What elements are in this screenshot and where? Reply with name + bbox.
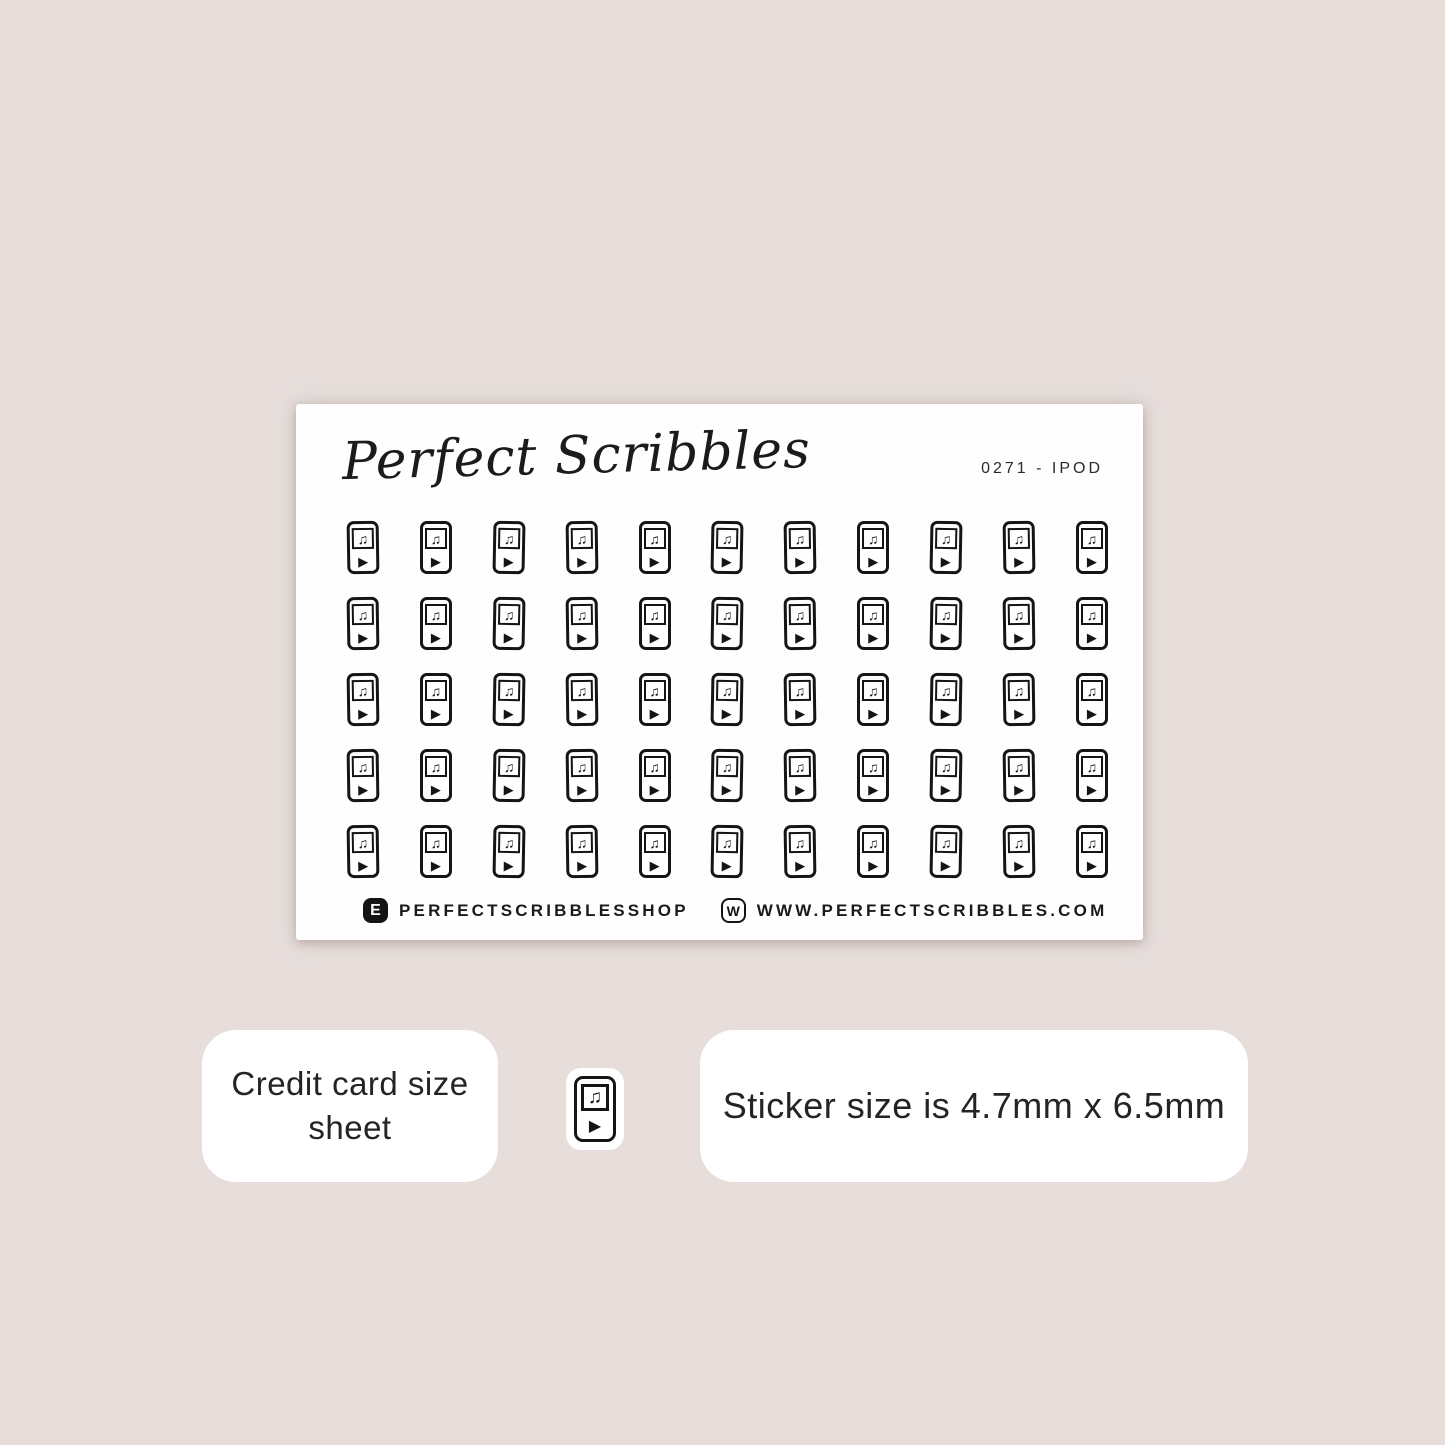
- music-note-icon: ♫: [716, 528, 738, 549]
- ipod-sticker-icon: ♫▶: [784, 521, 817, 574]
- ipod-sticker-icon: ♫▶: [1076, 597, 1108, 650]
- ipod-sticker-icon: ♫▶: [857, 673, 889, 726]
- music-note-icon: ♫: [644, 680, 666, 701]
- play-icon: ▶: [577, 555, 587, 568]
- ipod-sticker-icon: ♫▶: [347, 521, 380, 574]
- play-icon: ▶: [1087, 631, 1097, 644]
- ipod-sticker-icon: ♫▶: [1003, 521, 1036, 574]
- music-note-icon: ♫: [789, 680, 811, 701]
- ipod-sticker-icon: ♫▶: [1003, 749, 1036, 802]
- ipod-sticker-icon: ♫▶: [711, 673, 744, 727]
- music-note-icon: ♫: [498, 756, 520, 777]
- play-icon: ▶: [431, 631, 441, 644]
- play-icon: ▶: [1014, 631, 1024, 644]
- music-note-icon: ♫: [644, 604, 666, 625]
- music-note-icon: ♫: [570, 832, 592, 853]
- play-icon: ▶: [941, 783, 951, 796]
- play-icon: ▶: [431, 707, 441, 720]
- ipod-sticker-icon: ♫▶: [347, 825, 380, 878]
- music-note-icon: ♫: [1081, 604, 1103, 625]
- ipod-sticker-icon: ♫▶: [1003, 825, 1036, 878]
- play-icon: ▶: [1014, 859, 1024, 872]
- play-icon: ▶: [795, 859, 805, 872]
- product-image-canvas: Perfect Scribbles 0271 - IPOD ♫▶♫▶♫▶♫▶♫▶…: [0, 0, 1445, 1445]
- music-note-icon: ♫: [644, 528, 666, 549]
- play-icon: ▶: [577, 783, 587, 796]
- sticker-grid: ♫▶♫▶♫▶♫▶♫▶♫▶♫▶♫▶♫▶♫▶♫▶♫▶♫▶♫▶♫▶♫▶♫▶♫▶♫▶♫▶…: [347, 521, 1108, 878]
- music-note-icon: ♫: [644, 832, 666, 853]
- music-note-icon: ♫: [425, 680, 447, 701]
- music-note-icon: ♫: [1081, 756, 1103, 777]
- music-note-icon: ♫: [352, 680, 374, 701]
- music-note-icon: ♫: [425, 832, 447, 853]
- ipod-sticker-icon: ♫▶: [347, 673, 380, 726]
- music-note-icon: ♫: [716, 756, 738, 777]
- music-note-icon: ♫: [789, 528, 811, 549]
- play-icon: ▶: [650, 707, 660, 720]
- ipod-sticker-icon: ♫▶: [565, 825, 598, 878]
- music-note-icon: ♫: [425, 604, 447, 625]
- play-icon: ▶: [431, 783, 441, 796]
- ipod-sticker-icon: ♫▶: [420, 521, 452, 574]
- play-icon: ▶: [650, 783, 660, 796]
- music-note-icon: ♫: [570, 528, 592, 549]
- ipod-sticker-icon: ♫▶: [639, 597, 671, 650]
- play-icon: ▶: [722, 555, 732, 568]
- music-note-icon: ♫: [498, 528, 520, 549]
- play-icon: ▶: [1014, 783, 1024, 796]
- music-note-icon: ♫: [862, 756, 884, 777]
- music-note-icon: ♫: [789, 832, 811, 853]
- play-icon: ▶: [358, 783, 368, 796]
- play-icon: ▶: [1087, 707, 1097, 720]
- music-note-icon: ♫: [570, 680, 592, 701]
- sheet-size-text-line1: Credit card size: [231, 1062, 468, 1106]
- sticker-row: ♫▶♫▶♫▶♫▶♫▶♫▶♫▶♫▶♫▶♫▶♫▶: [347, 749, 1108, 802]
- music-note-icon: ♫: [425, 756, 447, 777]
- play-icon: ▶: [589, 1119, 601, 1135]
- ipod-sticker-icon: ♫▶: [492, 825, 525, 879]
- website-badge-icon: W: [721, 898, 746, 923]
- ipod-sticker-icon: ♫▶: [784, 673, 817, 726]
- ipod-sticker-icon: ♫▶: [1076, 521, 1108, 574]
- music-note-icon: ♫: [789, 756, 811, 777]
- music-note-icon: ♫: [352, 604, 374, 625]
- play-icon: ▶: [431, 555, 441, 568]
- play-icon: ▶: [795, 631, 805, 644]
- music-note-icon: ♫: [716, 604, 738, 625]
- music-note-icon: ♫: [1081, 832, 1103, 853]
- sheet-sku-label: 0271 - IPOD: [981, 460, 1103, 478]
- ipod-sticker-icon: ♫▶: [492, 749, 525, 803]
- ipod-sticker-icon: ♫▶: [574, 1076, 616, 1142]
- play-icon: ▶: [722, 707, 732, 720]
- play-icon: ▶: [358, 707, 368, 720]
- ipod-sticker-icon: ♫▶: [930, 521, 963, 575]
- music-note-icon: ♫: [862, 832, 884, 853]
- play-icon: ▶: [941, 707, 951, 720]
- play-icon: ▶: [1087, 783, 1097, 796]
- play-icon: ▶: [868, 707, 878, 720]
- music-note-icon: ♫: [352, 528, 374, 549]
- ipod-sticker-icon: ♫▶: [784, 825, 817, 878]
- ipod-sticker-icon: ♫▶: [1003, 597, 1036, 650]
- ipod-sticker-icon: ♫▶: [492, 673, 525, 727]
- play-icon: ▶: [868, 631, 878, 644]
- ipod-sticker-icon: ♫▶: [565, 521, 598, 574]
- play-icon: ▶: [722, 631, 732, 644]
- play-icon: ▶: [650, 859, 660, 872]
- music-note-icon: ♫: [498, 604, 520, 625]
- ipod-sticker-icon: ♫▶: [639, 749, 671, 802]
- play-icon: ▶: [941, 631, 951, 644]
- play-icon: ▶: [1014, 707, 1024, 720]
- sticker-size-text: Sticker size is 4.7mm x 6.5mm: [723, 1085, 1226, 1127]
- ipod-sticker-icon: ♫▶: [639, 521, 671, 574]
- music-note-icon: ♫: [716, 680, 738, 701]
- sticker-row: ♫▶♫▶♫▶♫▶♫▶♫▶♫▶♫▶♫▶♫▶♫▶: [347, 673, 1108, 726]
- ipod-sticker-icon: ♫▶: [857, 825, 889, 878]
- play-icon: ▶: [577, 707, 587, 720]
- play-icon: ▶: [577, 631, 587, 644]
- play-icon: ▶: [868, 859, 878, 872]
- music-note-icon: ♫: [425, 528, 447, 549]
- ipod-sticker-icon: ♫▶: [857, 521, 889, 574]
- ipod-sticker-icon: ♫▶: [711, 597, 744, 651]
- sticker-size-info-box: Sticker size is 4.7mm x 6.5mm: [700, 1030, 1248, 1182]
- sticker-row: ♫▶♫▶♫▶♫▶♫▶♫▶♫▶♫▶♫▶♫▶♫▶: [347, 597, 1108, 650]
- music-note-icon: ♫: [498, 680, 520, 701]
- ipod-sticker-icon: ♫▶: [1076, 673, 1108, 726]
- play-icon: ▶: [577, 859, 587, 872]
- ipod-sticker-icon: ♫▶: [1076, 825, 1108, 878]
- play-icon: ▶: [358, 555, 368, 568]
- play-icon: ▶: [650, 631, 660, 644]
- music-note-icon: ♫: [1081, 680, 1103, 701]
- play-icon: ▶: [503, 859, 513, 872]
- ipod-sticker-icon: ♫▶: [565, 597, 598, 650]
- music-note-icon: ♫: [1008, 832, 1030, 853]
- website-url: WWW.PERFECTSCRIBBLES.COM: [757, 901, 1108, 921]
- play-icon: ▶: [795, 707, 805, 720]
- play-icon: ▶: [941, 859, 951, 872]
- music-note-icon: ♫: [1008, 604, 1030, 625]
- ipod-sticker-icon: ♫▶: [1076, 749, 1108, 802]
- ipod-sticker-icon: ♫▶: [639, 825, 671, 878]
- ipod-sticker-icon: ♫▶: [930, 673, 963, 727]
- website-credit: W WWW.PERFECTSCRIBBLES.COM: [721, 898, 1108, 923]
- ipod-sticker-icon: ♫▶: [565, 749, 598, 802]
- music-note-icon: ♫: [570, 604, 592, 625]
- music-note-icon: ♫: [352, 756, 374, 777]
- music-note-icon: ♫: [935, 832, 957, 853]
- music-note-icon: ♫: [644, 756, 666, 777]
- sticker-sheet: Perfect Scribbles 0271 - IPOD ♫▶♫▶♫▶♫▶♫▶…: [296, 404, 1143, 940]
- ipod-sticker-icon: ♫▶: [857, 749, 889, 802]
- play-icon: ▶: [358, 631, 368, 644]
- sheet-size-text-line2: sheet: [308, 1106, 391, 1150]
- ipod-sticker-icon: ♫▶: [565, 673, 598, 726]
- play-icon: ▶: [503, 631, 513, 644]
- etsy-shop-credit: E PERFECTSCRIBBLESSHOP: [363, 898, 689, 923]
- music-note-icon: ♫: [581, 1084, 609, 1111]
- music-note-icon: ♫: [862, 680, 884, 701]
- play-icon: ▶: [868, 783, 878, 796]
- play-icon: ▶: [1087, 555, 1097, 568]
- music-note-icon: ♫: [1008, 756, 1030, 777]
- play-icon: ▶: [650, 555, 660, 568]
- play-icon: ▶: [503, 707, 513, 720]
- ipod-sticker-icon: ♫▶: [420, 673, 452, 726]
- ipod-sticker-icon: ♫▶: [347, 749, 380, 802]
- ipod-sticker-icon: ♫▶: [347, 597, 380, 650]
- music-note-icon: ♫: [1008, 680, 1030, 701]
- sticker-row: ♫▶♫▶♫▶♫▶♫▶♫▶♫▶♫▶♫▶♫▶♫▶: [347, 825, 1108, 878]
- music-note-icon: ♫: [935, 756, 957, 777]
- play-icon: ▶: [431, 859, 441, 872]
- music-note-icon: ♫: [352, 832, 374, 853]
- play-icon: ▶: [868, 555, 878, 568]
- play-icon: ▶: [795, 555, 805, 568]
- music-note-icon: ♫: [1081, 528, 1103, 549]
- music-note-icon: ♫: [716, 832, 738, 853]
- info-icon-chip: ♫▶: [566, 1068, 624, 1150]
- play-icon: ▶: [795, 783, 805, 796]
- ipod-sticker-icon: ♫▶: [784, 749, 817, 802]
- play-icon: ▶: [1087, 859, 1097, 872]
- ipod-sticker-icon: ♫▶: [930, 749, 963, 803]
- ipod-sticker-icon: ♫▶: [639, 673, 671, 726]
- play-icon: ▶: [1014, 555, 1024, 568]
- etsy-badge-icon: E: [363, 898, 388, 923]
- ipod-sticker-icon: ♫▶: [711, 749, 744, 803]
- play-icon: ▶: [503, 555, 513, 568]
- ipod-sticker-icon: ♫▶: [930, 825, 963, 879]
- music-note-icon: ♫: [789, 604, 811, 625]
- music-note-icon: ♫: [935, 680, 957, 701]
- ipod-sticker-icon: ♫▶: [1003, 673, 1036, 726]
- music-note-icon: ♫: [570, 756, 592, 777]
- ipod-sticker-icon: ♫▶: [420, 597, 452, 650]
- sticker-row: ♫▶♫▶♫▶♫▶♫▶♫▶♫▶♫▶♫▶♫▶♫▶: [347, 521, 1108, 574]
- brand-logo-script: Perfect Scribbles: [341, 420, 811, 492]
- ipod-sticker-icon: ♫▶: [420, 825, 452, 878]
- play-icon: ▶: [722, 859, 732, 872]
- ipod-sticker-icon: ♫▶: [711, 521, 744, 575]
- music-note-icon: ♫: [935, 528, 957, 549]
- etsy-shop-name: PERFECTSCRIBBLESSHOP: [399, 901, 689, 921]
- music-note-icon: ♫: [1008, 528, 1030, 549]
- music-note-icon: ♫: [862, 528, 884, 549]
- ipod-sticker-icon: ♫▶: [784, 597, 817, 650]
- music-note-icon: ♫: [862, 604, 884, 625]
- ipod-sticker-icon: ♫▶: [492, 521, 525, 575]
- sheet-footer: E PERFECTSCRIBBLESSHOP W WWW.PERFECTSCRI…: [363, 898, 1107, 923]
- play-icon: ▶: [358, 859, 368, 872]
- ipod-sticker-icon: ♫▶: [492, 597, 525, 651]
- play-icon: ▶: [941, 555, 951, 568]
- ipod-sticker-icon: ♫▶: [420, 749, 452, 802]
- ipod-sticker-icon: ♫▶: [930, 597, 963, 651]
- music-note-icon: ♫: [935, 604, 957, 625]
- sheet-size-info-box: Credit card size sheet: [202, 1030, 498, 1182]
- play-icon: ▶: [503, 783, 513, 796]
- play-icon: ▶: [722, 783, 732, 796]
- ipod-sticker-icon: ♫▶: [857, 597, 889, 650]
- ipod-sticker-icon: ♫▶: [711, 825, 744, 879]
- music-note-icon: ♫: [498, 832, 520, 853]
